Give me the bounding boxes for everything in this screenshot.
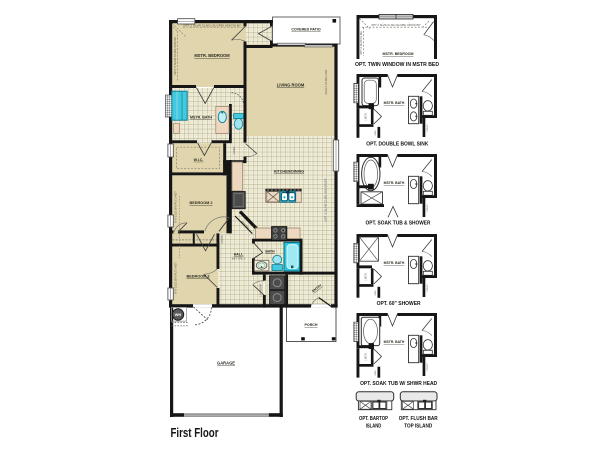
- svg-text:OPT 3' SLVR CLNG 4X8 DN BY: OPT 3' SLVR CLNG 4X8 DN BY: [324, 179, 328, 222]
- svg-text:ISLAND: ISLAND: [366, 424, 382, 430]
- svg-text:PORCH: PORCH: [305, 323, 318, 327]
- svg-text:TOILET: TOILET: [427, 124, 429, 132]
- svg-text:MSTR. BATH: MSTR. BATH: [384, 101, 405, 105]
- svg-text:OPT 2 SLVR CLNG (SLOPE) 4X8 DN: OPT 2 SLVR CLNG (SLOPE) 4X8 DN BY: [371, 23, 421, 27]
- svg-text:VAULT CLNG HGT: VAULT CLNG HGT: [324, 69, 328, 95]
- svg-text:LINEN: LINEN: [364, 353, 367, 361]
- svg-text:W.I.C.: W.I.C.: [194, 158, 204, 162]
- svg-text:WH: WH: [175, 312, 182, 317]
- svg-text:COATS: COATS: [221, 235, 224, 243]
- svg-text:LINEN: LINEN: [232, 147, 236, 155]
- svg-text:OPT 2 SLVR CLNG 4X8 DN: OPT 2 SLVR CLNG 4X8 DN: [173, 37, 177, 75]
- svg-text:9'-0 CLG (9'6 PLT) HGT: 9'-0 CLG (9'6 PLT) HGT: [174, 262, 178, 294]
- svg-text:First Floor: First Floor: [171, 425, 219, 440]
- svg-text:MSTR. BATH: MSTR. BATH: [384, 261, 405, 265]
- svg-text:OPT. SOAK TUB W/ SHWR HEAD: OPT. SOAK TUB W/ SHWR HEAD: [360, 381, 437, 387]
- svg-text:9'-0 CLG (9'6 PLT) HGT: 9'-0 CLG (9'6 PLT) HGT: [174, 191, 178, 223]
- svg-text:BATH: BATH: [265, 250, 275, 254]
- svg-text:MSTR. BEDROOM: MSTR. BEDROOM: [194, 53, 230, 58]
- svg-text:KITCHEN/DINING: KITCHEN/DINING: [274, 169, 304, 173]
- svg-text:OPT. TWIN WINDOW IN MSTR BED: OPT. TWIN WINDOW IN MSTR BED: [355, 62, 439, 68]
- svg-text:OPT. FLUSH BAR: OPT. FLUSH BAR: [399, 416, 438, 422]
- svg-text:BEDROOM 2: BEDROOM 2: [190, 201, 213, 205]
- svg-text:2868: 2868: [375, 370, 377, 376]
- svg-text:MSTR. BATH: MSTR. BATH: [384, 340, 405, 344]
- svg-text:TOILET: TOILET: [427, 284, 429, 292]
- svg-text:2868: 2868: [375, 290, 377, 296]
- svg-text:OPT. BARTOP: OPT. BARTOP: [359, 416, 388, 422]
- svg-text:COVERED PATIO: COVERED PATIO: [291, 28, 320, 32]
- svg-text:TOP ISLAND: TOP ISLAND: [404, 424, 432, 430]
- svg-text:OPT 2 SLVR CLNG: OPT 2 SLVR CLNG: [359, 31, 363, 55]
- svg-text:TOILET: TOILET: [427, 204, 429, 212]
- svg-text:OPT. 60" SHOWER: OPT. 60" SHOWER: [377, 301, 422, 307]
- svg-text:2868: 2868: [375, 130, 377, 136]
- svg-text:LINEN: LINEN: [364, 113, 367, 121]
- svg-text:MSTR. BEDROOM: MSTR. BEDROOM: [383, 52, 414, 56]
- svg-text:OPT. SOAK TUB & SHOWER: OPT. SOAK TUB & SHOWER: [366, 220, 432, 226]
- svg-text:HALL: HALL: [234, 253, 244, 257]
- svg-text:LIVING ROOM: LIVING ROOM: [277, 82, 305, 87]
- svg-text:GARAGE: GARAGE: [217, 361, 235, 366]
- svg-text:MSTR. BATH: MSTR. BATH: [190, 116, 212, 120]
- svg-text:OPT. DOUBLE BOWL SINK: OPT. DOUBLE BOWL SINK: [366, 141, 429, 147]
- svg-text:5/8 TYPE X: 5/8 TYPE X: [232, 257, 246, 261]
- svg-text:LINEN: LINEN: [364, 273, 367, 281]
- svg-text:TOILET: TOILET: [427, 363, 429, 371]
- svg-text:MSTR. BATH: MSTR. BATH: [384, 181, 405, 185]
